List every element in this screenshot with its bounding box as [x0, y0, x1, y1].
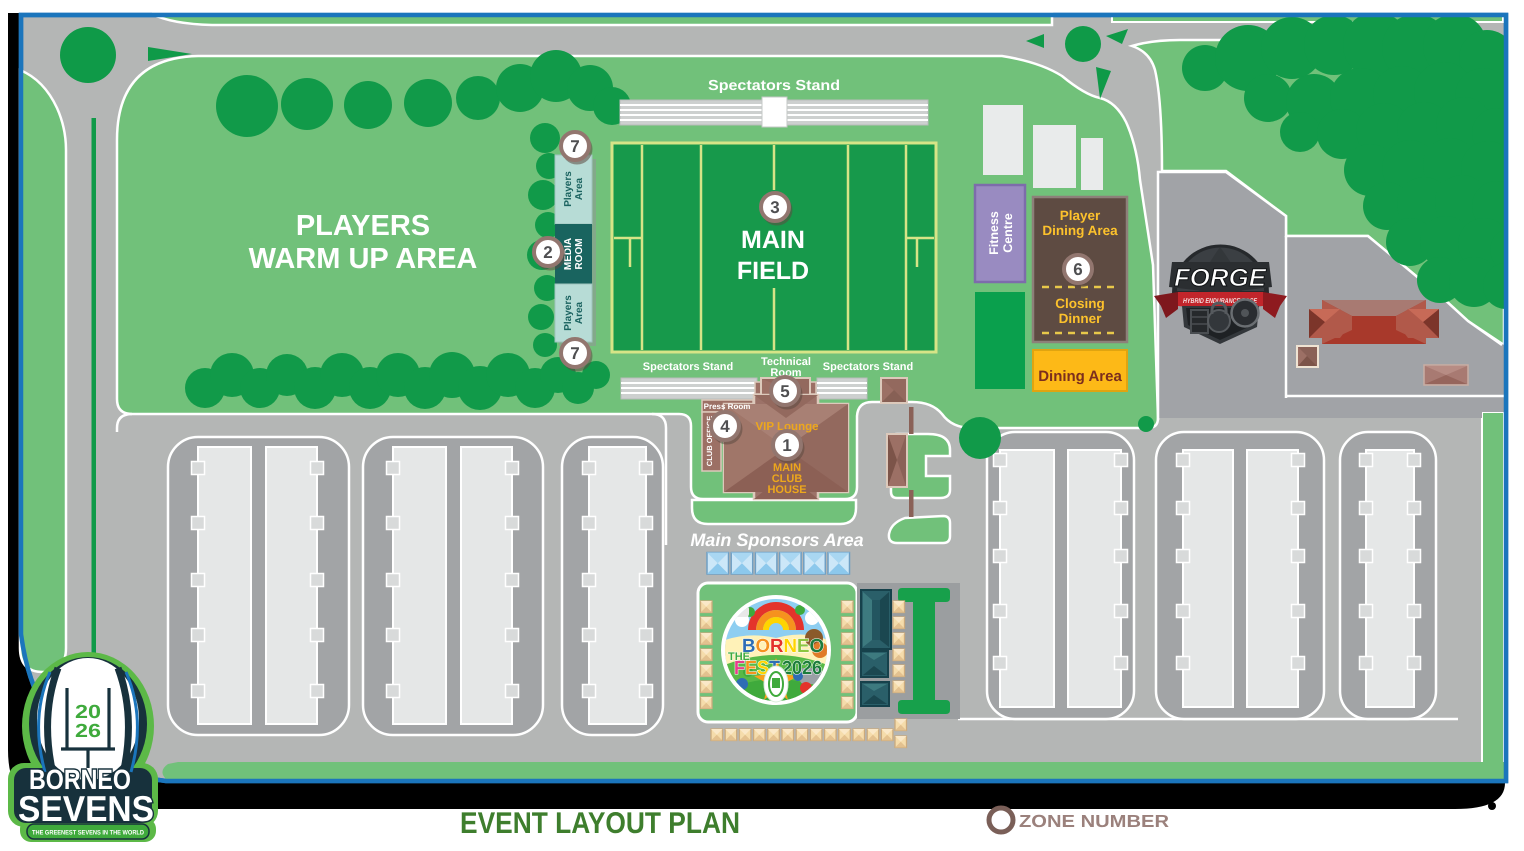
- svg-text:1: 1: [782, 436, 791, 455]
- svg-text:WARM UP AREA: WARM UP AREA: [249, 243, 478, 275]
- svg-text:5: 5: [780, 382, 789, 401]
- svg-text:Main Sponsors Area: Main Sponsors Area: [690, 530, 863, 550]
- svg-text:7: 7: [570, 344, 579, 363]
- svg-text:6: 6: [1073, 260, 1082, 279]
- svg-text:3: 3: [770, 198, 779, 217]
- svg-text:2: 2: [543, 243, 552, 262]
- svg-text:HOUSE: HOUSE: [767, 484, 806, 496]
- svg-text:PLAYERS: PLAYERS: [296, 210, 430, 242]
- svg-text:Closing: Closing: [1055, 296, 1105, 311]
- svg-text:ZONE NUMBER: ZONE NUMBER: [1019, 811, 1169, 831]
- svg-text:MEDIAROOM: MEDIAROOM: [563, 238, 585, 270]
- svg-text:SEVENS: SEVENS: [18, 788, 154, 829]
- svg-text:Player: Player: [1060, 208, 1101, 223]
- svg-text:FORGE: FORGE: [1174, 264, 1267, 292]
- svg-text:MAIN: MAIN: [741, 226, 805, 254]
- svg-text:FitnessCentre: FitnessCentre: [987, 211, 1015, 255]
- svg-text:20: 20: [75, 702, 101, 723]
- svg-text:THE GREENEST SEVENS IN THE WOR: THE GREENEST SEVENS IN THE WORLD: [32, 830, 144, 837]
- svg-text:Spectators Stand: Spectators Stand: [643, 361, 733, 373]
- svg-text:BORNEO: BORNEO: [742, 636, 824, 657]
- svg-text:26: 26: [75, 721, 101, 742]
- svg-text:Dining Area: Dining Area: [1042, 223, 1118, 238]
- svg-text:EVENT LAYOUT PLAN: EVENT LAYOUT PLAN: [460, 807, 740, 840]
- svg-text:Dining Area: Dining Area: [1038, 368, 1122, 385]
- svg-text:Press Room: Press Room: [704, 402, 751, 411]
- svg-text:4: 4: [720, 417, 730, 436]
- svg-text:Dinner: Dinner: [1059, 311, 1103, 326]
- svg-text:Spectators Stand: Spectators Stand: [823, 361, 913, 373]
- svg-text:7: 7: [570, 137, 579, 156]
- svg-text:Spectators Stand: Spectators Stand: [708, 78, 840, 94]
- svg-text:FIELD: FIELD: [737, 257, 809, 285]
